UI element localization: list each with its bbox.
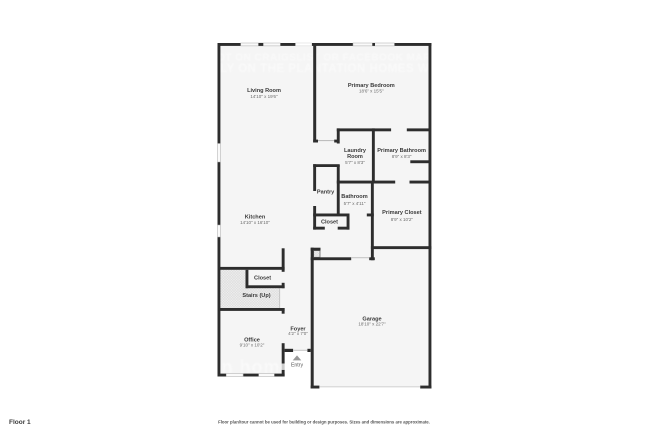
svg-text:Primary Closet: Primary Closet (382, 210, 422, 216)
svg-text:4'2" x 7'0": 4'2" x 7'0" (288, 331, 308, 336)
svg-text:Pantry: Pantry (317, 189, 335, 195)
svg-text:5'7" x 8'3": 5'7" x 8'3" (345, 160, 365, 165)
svg-text:18'10" x 22'7": 18'10" x 22'7" (358, 321, 386, 326)
svg-text:8'9" x 10'2": 8'9" x 10'2" (391, 217, 414, 222)
svg-text:18'6" x 15'5": 18'6" x 15'5" (359, 88, 384, 93)
svg-text:Entry: Entry (291, 363, 304, 369)
svg-text:Stairs (Up): Stairs (Up) (242, 293, 270, 299)
svg-text:Floor 1: Floor 1 (9, 419, 31, 426)
svg-text:Bathroom: Bathroom (341, 194, 367, 200)
svg-text:5'7" x 4'11": 5'7" x 4'11" (344, 201, 366, 206)
svg-text:8'9" x 8'3": 8'9" x 8'3" (392, 154, 412, 159)
svg-text:14'10" x 19'6": 14'10" x 19'6" (250, 94, 278, 99)
svg-text:Laundry: Laundry (344, 148, 367, 154)
svg-text:ONLY ON THE PLANTATION HOMES W: ONLY ON THE PLANTATION HOMES WEB (202, 63, 446, 75)
svg-text:Closet: Closet (254, 276, 271, 282)
svg-text:NOT ON CRAIGSLIST OR FACEBOOK: NOT ON CRAIGSLIST OR FACEBOOK MARK (209, 53, 439, 64)
svg-text:Floor plan/tour cannot be used: Floor plan/tour cannot be used for build… (218, 419, 430, 424)
svg-text:Closet: Closet (321, 219, 338, 225)
svg-text:14'10" x 16'10": 14'10" x 16'10" (240, 220, 270, 225)
svg-text:9'10" x 10'2": 9'10" x 10'2" (240, 343, 265, 348)
